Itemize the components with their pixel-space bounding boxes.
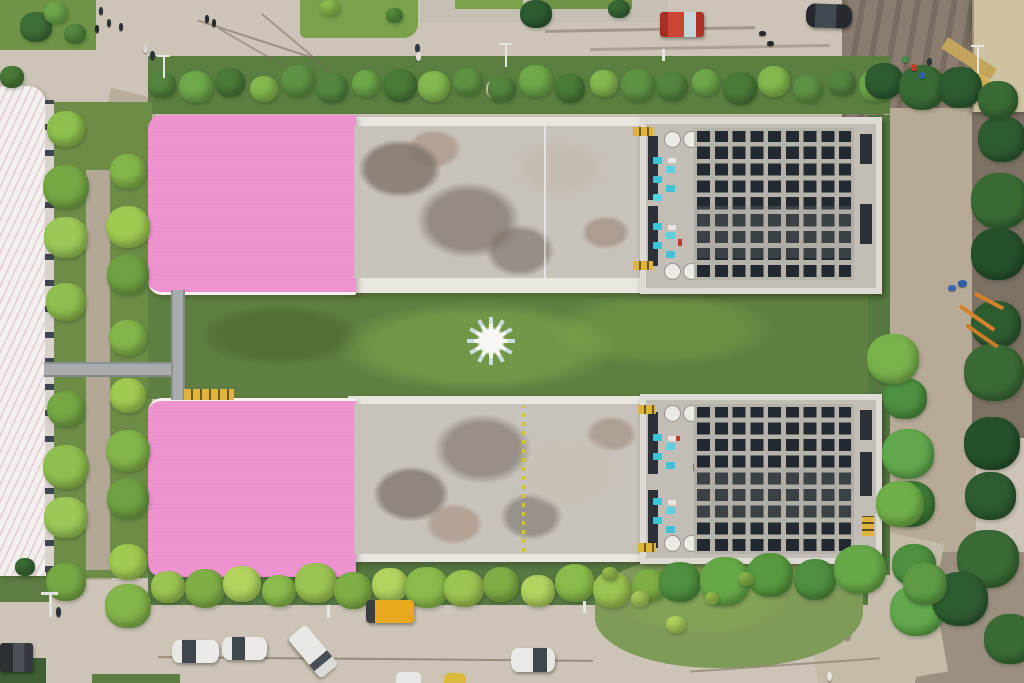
tree xyxy=(47,391,85,427)
tree xyxy=(185,569,226,608)
building1-pink-roof xyxy=(148,115,356,295)
tree xyxy=(794,559,837,600)
pedestrian xyxy=(927,58,932,65)
bush xyxy=(386,8,403,23)
bush xyxy=(738,572,754,586)
tree xyxy=(47,111,85,147)
tree xyxy=(883,378,926,419)
tree-dark xyxy=(865,63,903,99)
tree xyxy=(109,320,147,356)
dotted-line-yellow xyxy=(522,406,525,552)
solar-panel xyxy=(860,410,872,440)
tree-dark xyxy=(978,81,1018,119)
tree-dark xyxy=(971,301,1021,348)
solar-panel xyxy=(860,204,872,244)
motorbike xyxy=(958,280,967,287)
tree-dark xyxy=(971,173,1024,229)
white-unit xyxy=(668,436,676,441)
tree xyxy=(223,566,261,602)
tree xyxy=(110,378,147,413)
cyan-heater xyxy=(666,166,675,173)
pedestrian xyxy=(911,64,917,71)
bush xyxy=(666,616,686,633)
yellow-hatch xyxy=(638,405,656,414)
tree xyxy=(659,562,701,602)
tree xyxy=(555,564,596,603)
hedge-bush xyxy=(453,68,483,96)
hedge-bush xyxy=(352,70,381,97)
hedge-bush xyxy=(418,71,450,102)
grid-lattice-overlay xyxy=(694,206,854,258)
tree xyxy=(106,430,151,473)
cyan-heater xyxy=(666,185,675,192)
pedestrian xyxy=(56,607,61,617)
white-car xyxy=(222,637,267,660)
pedestrian xyxy=(902,56,908,63)
hedge-bush xyxy=(656,72,687,102)
tree xyxy=(262,575,297,608)
tree xyxy=(444,570,484,608)
pedestrian xyxy=(415,44,420,52)
tree-dark xyxy=(964,344,1024,401)
hedge-bush xyxy=(692,69,721,96)
hedge-bush xyxy=(621,69,655,101)
tree-dark xyxy=(971,228,1024,279)
hedge-bush xyxy=(555,74,586,103)
corridor-vertical xyxy=(171,290,185,400)
bush xyxy=(705,592,719,605)
yellow-car-partial xyxy=(444,673,466,683)
tree xyxy=(46,563,86,601)
tree xyxy=(43,445,90,489)
hedge-bush xyxy=(250,76,278,103)
tree-dark xyxy=(965,472,1016,520)
cyan-heater xyxy=(666,526,675,533)
white-building-roof xyxy=(0,86,46,576)
tree xyxy=(483,567,520,602)
hedge-bush xyxy=(215,68,246,97)
pedestrian xyxy=(95,25,99,33)
cyan-heater xyxy=(666,507,675,514)
tree xyxy=(903,563,947,605)
bush xyxy=(602,567,618,581)
tree xyxy=(867,334,919,384)
street-lamp-pole xyxy=(977,46,979,73)
street-lamp-arm xyxy=(157,55,170,57)
bush xyxy=(44,2,68,24)
street-lamp-pole xyxy=(163,56,165,78)
bush-dark xyxy=(608,0,630,18)
solar-panel xyxy=(648,136,658,200)
rooftop-marker xyxy=(676,436,680,441)
building1-concrete-roof xyxy=(354,126,640,278)
hedge-bush xyxy=(148,72,175,98)
hedge-bush xyxy=(519,65,552,96)
black-car xyxy=(806,3,853,29)
pedestrian xyxy=(212,19,216,27)
cyan-heater xyxy=(653,453,662,460)
tree xyxy=(882,429,935,479)
hedge-bush xyxy=(793,75,823,103)
bush xyxy=(320,0,340,16)
tree xyxy=(107,479,148,518)
yellow-hatch xyxy=(633,127,653,136)
pedestrian xyxy=(107,19,111,27)
hedge-bush xyxy=(383,69,418,102)
tree xyxy=(106,206,151,249)
mud-streak-top xyxy=(545,26,755,33)
tree xyxy=(372,568,408,602)
bush-dark xyxy=(15,558,35,576)
tree xyxy=(107,255,148,294)
tree-dark xyxy=(964,417,1020,470)
white-unit xyxy=(668,500,676,505)
bush xyxy=(631,591,649,607)
white-van xyxy=(287,624,338,679)
hedge-bush xyxy=(488,76,515,102)
grass-top-strip xyxy=(455,0,523,9)
hedge-bush xyxy=(281,65,315,97)
tree xyxy=(747,553,794,597)
sun-sculpture-center xyxy=(479,329,503,353)
solar-panel xyxy=(860,452,872,496)
pedestrian xyxy=(119,23,123,31)
tree-dark xyxy=(938,67,981,108)
tree xyxy=(46,283,86,321)
cyan-heater xyxy=(653,434,662,441)
cyan-heater xyxy=(653,176,662,183)
building2-concrete-roof xyxy=(354,404,640,554)
white-car xyxy=(172,640,219,663)
tree-dark xyxy=(984,614,1024,664)
pedestrian xyxy=(827,672,832,681)
lawn-central xyxy=(148,283,882,399)
mud-streak-top xyxy=(590,44,830,51)
tree xyxy=(109,544,147,580)
walkway-yellow-hatch xyxy=(184,389,234,400)
yellow-hatch xyxy=(633,261,653,270)
corridor-horizontal xyxy=(44,362,174,377)
cyan-heater xyxy=(653,157,662,164)
bollard xyxy=(662,49,665,61)
tree xyxy=(295,563,337,603)
yellow-truck xyxy=(366,600,414,623)
grass-bottom-left xyxy=(92,674,180,683)
cyan-heater xyxy=(666,232,675,239)
bollard xyxy=(327,605,330,618)
hedge-bush xyxy=(179,71,212,102)
yellow-hatch xyxy=(862,516,874,536)
tree xyxy=(43,165,90,209)
hedge-bush xyxy=(316,73,347,103)
pedestrian xyxy=(416,52,421,61)
water-tank xyxy=(664,131,681,148)
tree xyxy=(105,584,151,628)
pedestrian xyxy=(205,15,209,23)
cyan-heater xyxy=(653,517,662,524)
tree xyxy=(44,497,87,538)
bush xyxy=(64,24,86,44)
tree xyxy=(44,217,87,258)
tree xyxy=(834,545,886,594)
pedestrian xyxy=(99,7,103,15)
building2-pink-roof xyxy=(148,398,356,577)
animal xyxy=(759,31,766,36)
dark-suv xyxy=(0,643,33,672)
cyan-heater xyxy=(666,462,675,469)
street-lamp-arm xyxy=(41,592,58,595)
cyan-heater xyxy=(653,194,662,201)
fire-truck xyxy=(660,12,704,37)
hedge-bush xyxy=(828,70,855,96)
bush xyxy=(0,66,24,88)
hedge-bush xyxy=(590,70,618,97)
white-car xyxy=(511,648,555,672)
animal xyxy=(767,41,774,46)
bollard xyxy=(583,601,586,613)
bush-dark xyxy=(520,0,552,28)
white-unit xyxy=(668,158,676,163)
hedge-bush xyxy=(723,72,758,105)
cyan-heater xyxy=(653,242,662,249)
tree xyxy=(110,154,147,189)
street-lamp-pole xyxy=(49,592,52,617)
pedestrian xyxy=(150,51,155,60)
white-unit xyxy=(668,225,676,230)
tree xyxy=(876,481,924,527)
water-tank xyxy=(664,405,681,422)
rooftop-marker xyxy=(678,239,682,246)
water-tank xyxy=(664,535,681,552)
solar-panel xyxy=(648,412,658,474)
building1-roof-seam xyxy=(544,126,546,278)
cyan-heater xyxy=(653,498,662,505)
tree-dark xyxy=(978,116,1024,162)
tree xyxy=(521,575,555,607)
yellow-hatch xyxy=(638,543,656,552)
cyan-heater xyxy=(666,443,675,450)
aerial-drone-photo xyxy=(0,0,1024,683)
cyan-heater xyxy=(653,223,662,230)
street-lamp-arm xyxy=(499,43,512,45)
water-tank xyxy=(664,263,681,280)
solar-panel xyxy=(648,206,658,266)
pedestrian xyxy=(143,45,148,53)
street-lamp-arm xyxy=(971,45,984,47)
grid-lattice-overlay xyxy=(694,468,854,518)
solar-panel xyxy=(860,134,872,164)
street-lamp-pole xyxy=(505,44,507,67)
white-car-partial xyxy=(396,672,421,683)
cyan-heater xyxy=(666,251,675,258)
pedestrian xyxy=(919,72,925,79)
hedge-bush xyxy=(758,66,790,97)
tree xyxy=(151,571,185,603)
motorbike xyxy=(948,285,956,291)
